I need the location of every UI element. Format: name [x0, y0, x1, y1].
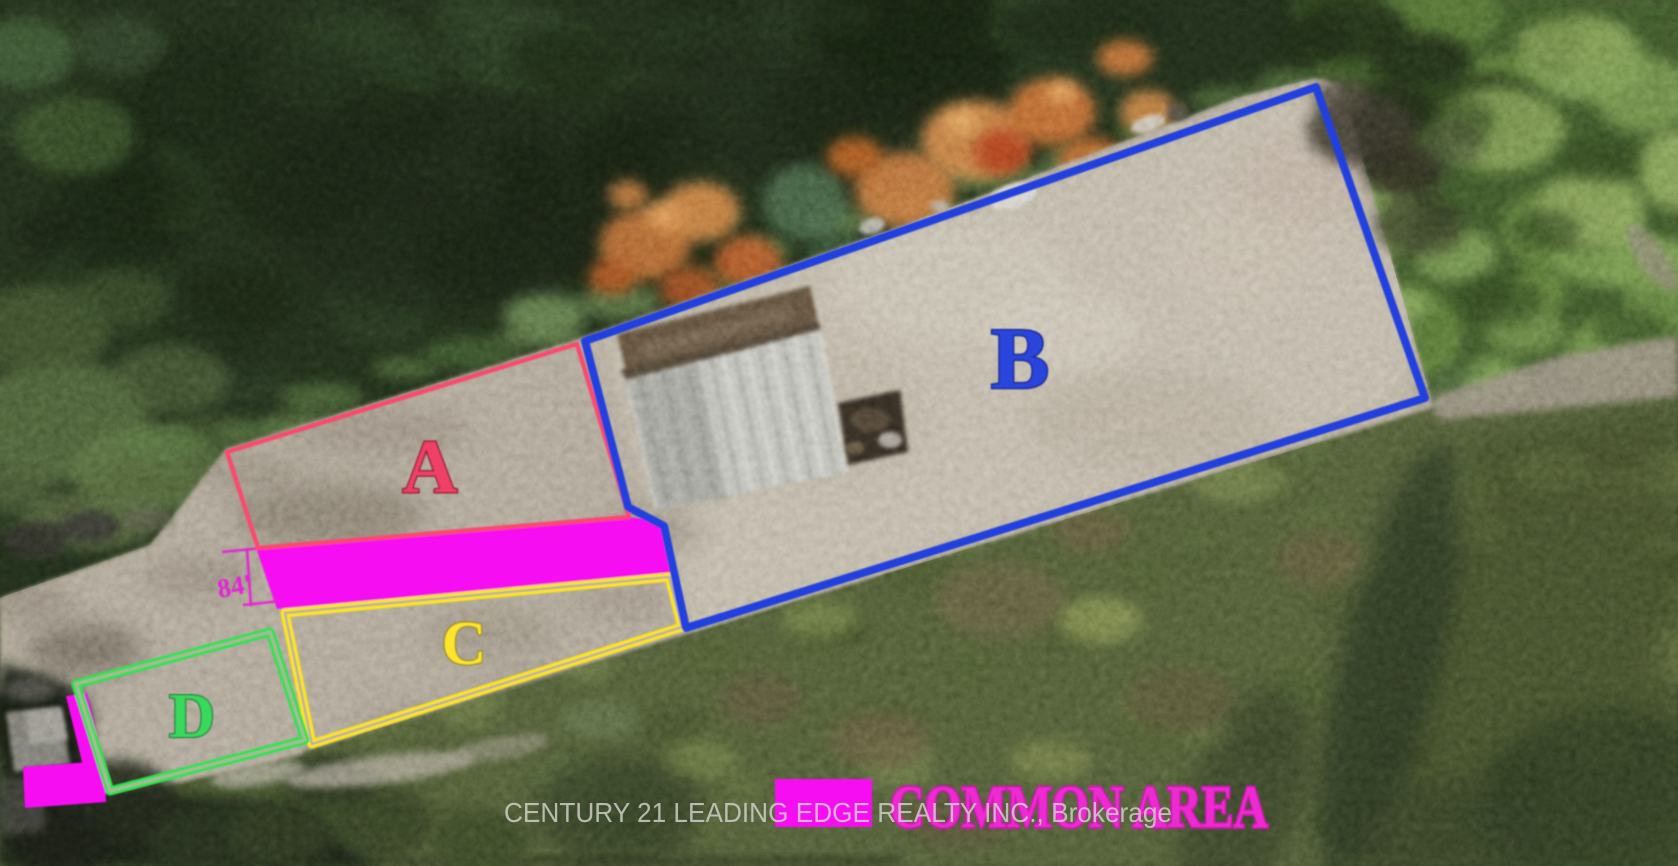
svg-text:CENTURY 21 LEADING EDGE REALTY: CENTURY 21 LEADING EDGE REALTY INC., Bro… — [504, 797, 1172, 828]
svg-text:C: C — [442, 610, 487, 678]
svg-text:B: B — [991, 311, 1050, 408]
svg-text:84': 84' — [215, 568, 254, 604]
svg-text:D: D — [169, 680, 215, 751]
svg-text:A: A — [403, 425, 458, 509]
